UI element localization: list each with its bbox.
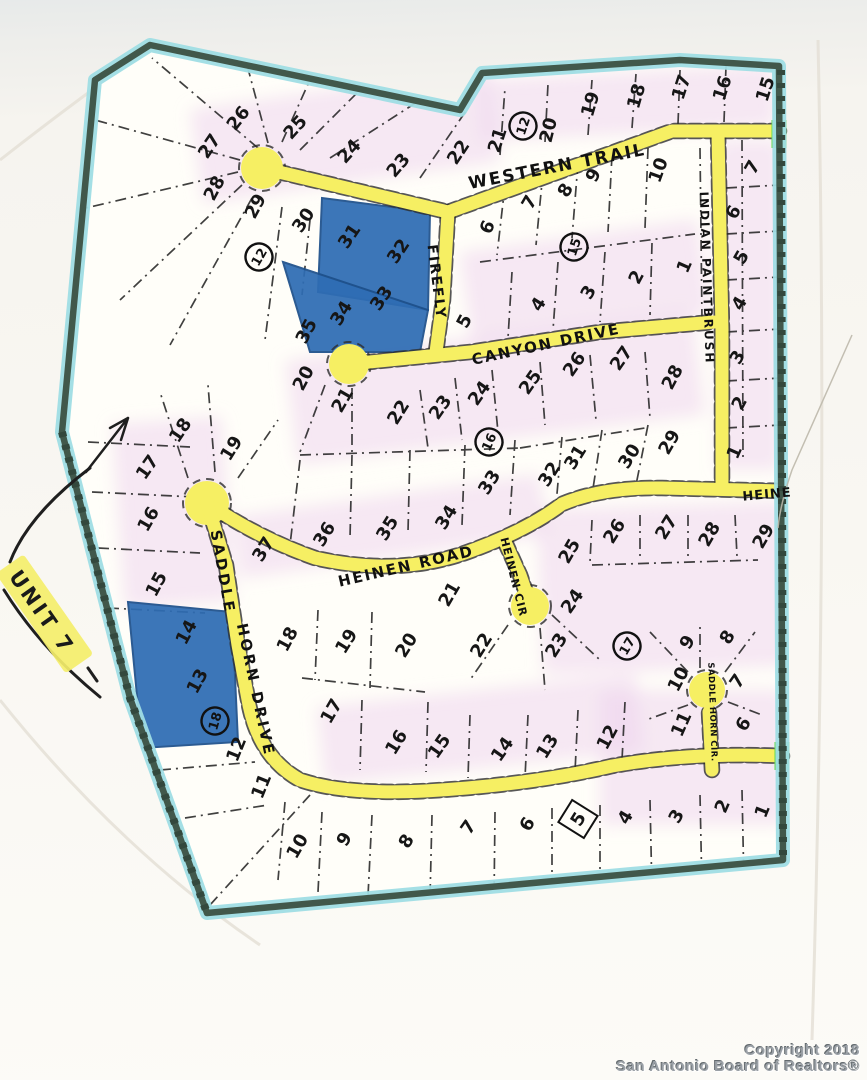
unit-label: UNIT 7 [0, 554, 93, 673]
plat-map-scan: WESTERN TRAILFIREFLYCANYON DRIVEINDIAN P… [0, 0, 867, 1080]
unit-label-text: UNIT 7 [4, 566, 79, 659]
copyright-notice: Copyright 2018 San Antonio Board of Real… [616, 1043, 860, 1075]
copyright-line2: San Antonio Board of Realtors® [616, 1059, 860, 1075]
plat-map: WESTERN TRAILFIREFLYCANYON DRIVEINDIAN P… [0, 0, 867, 1080]
unit-label-group: UNIT 7 [0, 554, 93, 673]
copyright-line1: Copyright 2018 [616, 1043, 860, 1059]
